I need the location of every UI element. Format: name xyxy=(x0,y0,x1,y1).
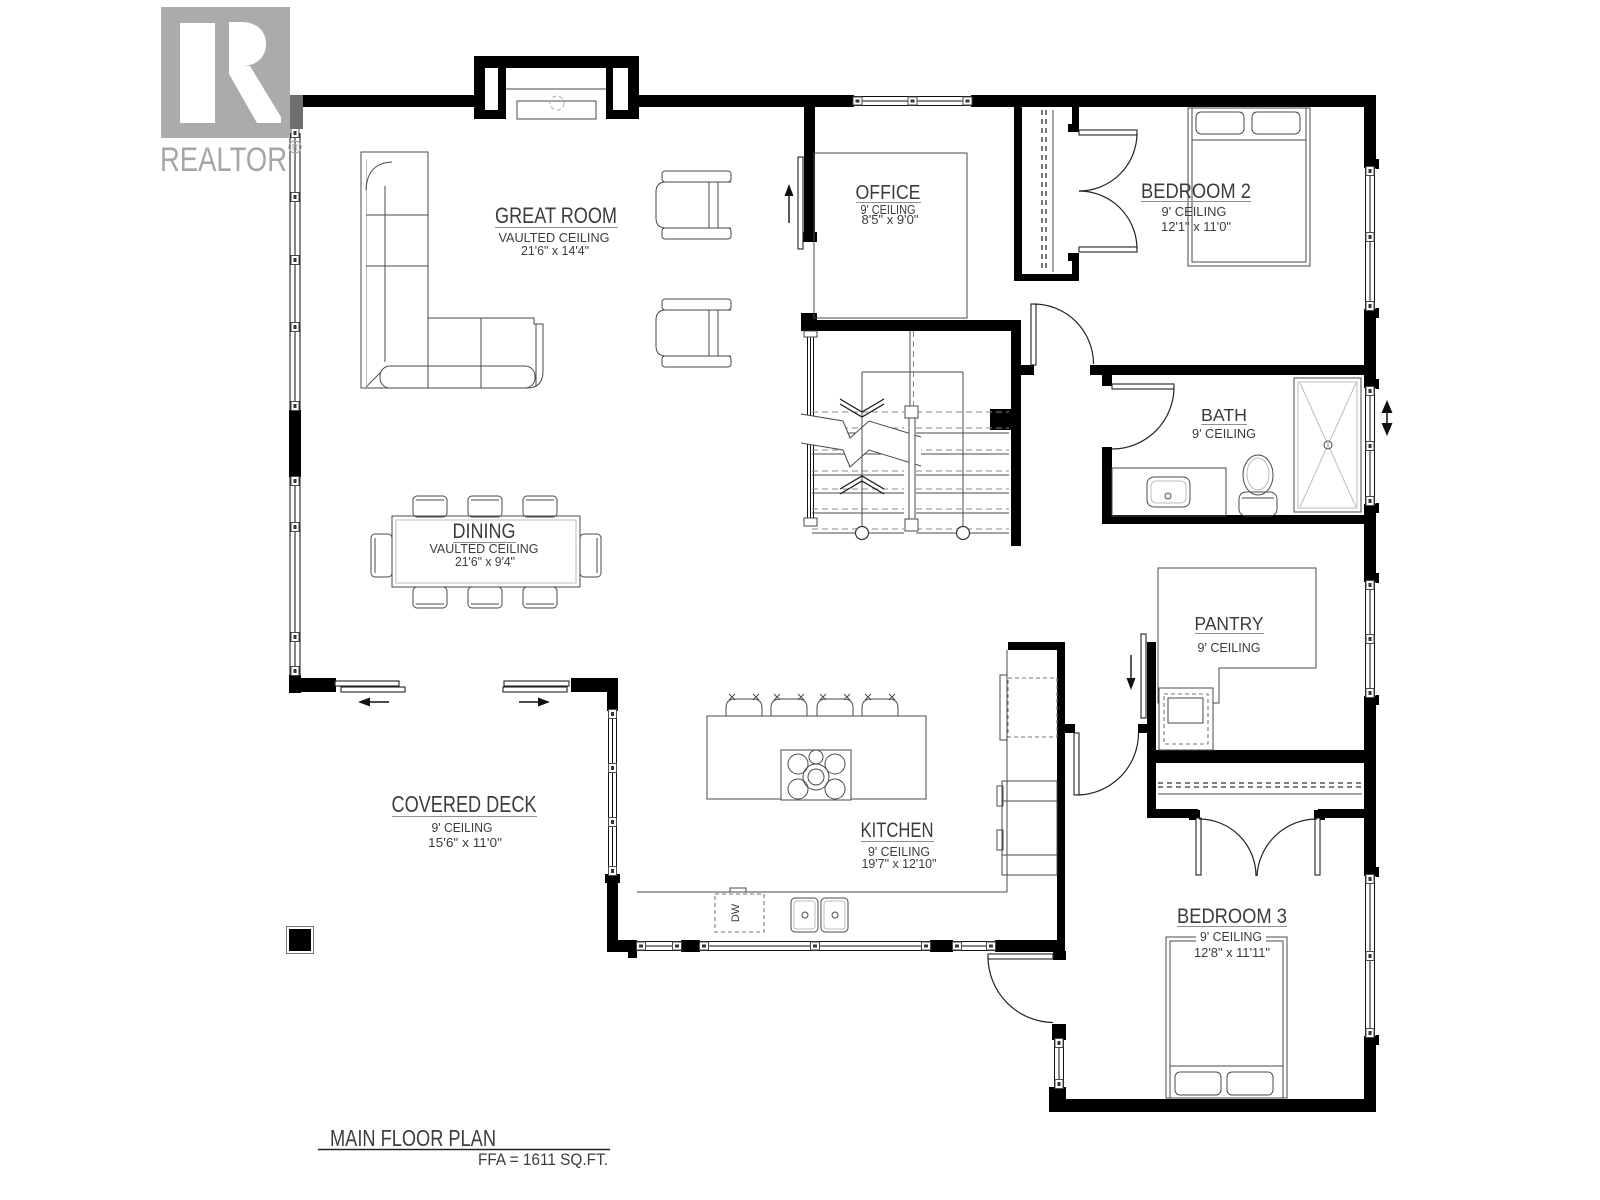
svg-text:9' CEILING: 9' CEILING xyxy=(1162,205,1227,219)
svg-text:R: R xyxy=(292,143,299,153)
svg-text:12'1" x 11'0": 12'1" x 11'0" xyxy=(1161,220,1231,234)
svg-text:FFA = 1611 SQ.FT.: FFA = 1611 SQ.FT. xyxy=(478,1150,608,1169)
svg-text:DW: DW xyxy=(730,903,742,922)
svg-text:DINING: DINING xyxy=(453,520,516,543)
svg-text:OFFICE: OFFICE xyxy=(856,182,921,204)
svg-text:9' CEILING: 9' CEILING xyxy=(432,821,493,835)
svg-text:VAULTED CEILING: VAULTED CEILING xyxy=(430,542,539,556)
svg-text:GREAT ROOM: GREAT ROOM xyxy=(495,203,617,228)
svg-text:COVERED DECK: COVERED DECK xyxy=(392,791,538,817)
svg-text:BEDROOM 2: BEDROOM 2 xyxy=(1141,180,1251,203)
svg-text:15'6" x 11'0": 15'6" x 11'0" xyxy=(428,836,502,850)
svg-text:REALTOR: REALTOR xyxy=(160,141,287,179)
svg-text:9' CEILING: 9' CEILING xyxy=(1198,641,1261,655)
svg-text:9' CEILING: 9' CEILING xyxy=(1200,930,1262,944)
svg-text:21'6" x 14'4": 21'6" x 14'4" xyxy=(521,243,589,258)
svg-text:MAIN FLOOR PLAN: MAIN FLOOR PLAN xyxy=(330,1125,496,1151)
svg-text:9' CEILING: 9' CEILING xyxy=(1192,427,1256,441)
svg-text:BATH: BATH xyxy=(1201,405,1247,425)
svg-text:21'6" x 9'4": 21'6" x 9'4" xyxy=(455,555,515,569)
svg-text:19'7" x 12'10": 19'7" x 12'10" xyxy=(862,857,937,871)
svg-text:PANTRY: PANTRY xyxy=(1195,614,1264,634)
svg-text:12'8" x 11'11": 12'8" x 11'11" xyxy=(1194,946,1270,960)
svg-text:BEDROOM 3: BEDROOM 3 xyxy=(1177,905,1287,928)
svg-text:8'5" x 9'0": 8'5" x 9'0" xyxy=(862,213,919,227)
svg-text:KITCHEN: KITCHEN xyxy=(861,819,934,842)
